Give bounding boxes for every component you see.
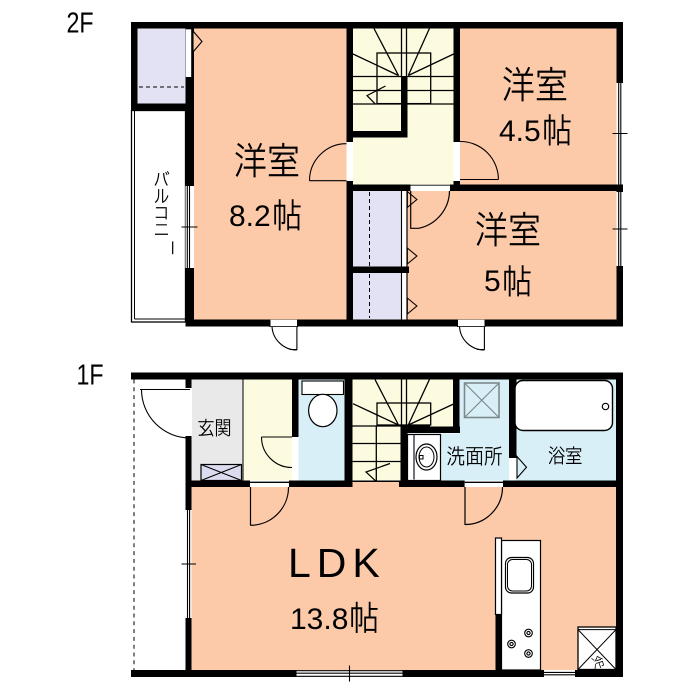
svg-text:LDK: LDK	[288, 540, 386, 586]
svg-text:2F: 2F	[67, 6, 94, 39]
svg-text:8.2: 8.2	[229, 200, 271, 233]
svg-text:1F: 1F	[77, 358, 104, 391]
svg-text:13.8: 13.8	[290, 603, 348, 636]
svg-text:5: 5	[484, 265, 501, 298]
svg-text:4.5: 4.5	[499, 115, 541, 148]
